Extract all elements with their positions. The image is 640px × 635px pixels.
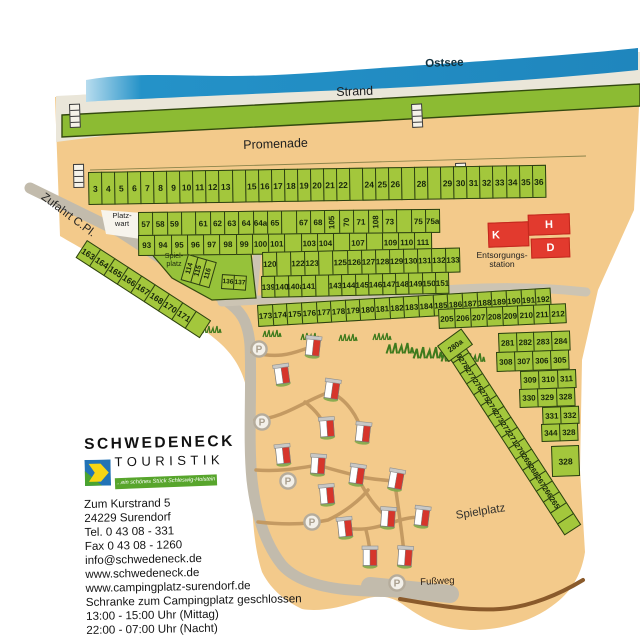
- plot-61: 61: [195, 211, 211, 235]
- plot-99: 99: [235, 234, 252, 255]
- plot-empty: [181, 211, 197, 235]
- building-k: K: [488, 221, 530, 247]
- logo: SCHWEDENECK TOURISTIK ...ein schönes Stü…: [84, 432, 255, 470]
- plot-empty: [396, 209, 412, 233]
- svg-text:P: P: [259, 417, 266, 428]
- building-h-label: H: [545, 218, 553, 230]
- logo-subtitle: TOURISTIK: [114, 451, 254, 469]
- plot-70: 70: [339, 210, 355, 234]
- plot-282: 282: [516, 332, 535, 353]
- plot-65: 65: [267, 210, 283, 234]
- plot-75a: 75a: [425, 209, 441, 233]
- building-d: D: [531, 237, 571, 258]
- building-h: H: [528, 213, 571, 235]
- plot-empty: [281, 210, 297, 234]
- plot-105: 105: [324, 210, 340, 234]
- building-k-label: K: [492, 229, 500, 241]
- plot-330: 330: [519, 388, 539, 408]
- label-promenade: Promenade: [243, 136, 308, 152]
- label-spielplatz-small: Spiel- platz: [158, 252, 190, 267]
- building-d-label: D: [546, 242, 554, 254]
- beach-hut-icon: [318, 416, 336, 440]
- plot-64: 64: [238, 211, 254, 235]
- plot-151: 151: [435, 272, 450, 294]
- stairs-icon: [70, 104, 81, 127]
- plot-68: 68: [310, 210, 326, 234]
- plot-row-r8b: 344328: [541, 423, 579, 442]
- plot-59: 59: [167, 212, 183, 236]
- plot-98: 98: [219, 234, 236, 255]
- plot-row-r6b: 308307306305: [496, 349, 570, 372]
- label-fussweg: Fußweg: [420, 575, 455, 588]
- plot-311: 311: [557, 369, 577, 389]
- plot-284: 284: [551, 330, 570, 351]
- plot-328: 328: [559, 423, 579, 442]
- parking-icon: P: [389, 575, 404, 590]
- plot-332: 332: [560, 406, 580, 425]
- label-platzwart: Platz- wart: [103, 212, 141, 228]
- label-entsorgung-line2: station: [466, 260, 538, 269]
- plot-row-r9: 328: [551, 445, 580, 477]
- logo-wordmark: SCHWEDENECK: [84, 432, 254, 454]
- plot-329: 329: [537, 388, 557, 408]
- parking-icon: P: [251, 341, 266, 356]
- plot-row-r3b: 139140140a141143144145146147148149150151: [261, 272, 450, 298]
- label-ostsee: Ostsee: [425, 57, 464, 70]
- svg-text:P: P: [285, 476, 292, 487]
- plot-71: 71: [353, 210, 369, 234]
- plot-281: 281: [498, 332, 517, 353]
- plot-306: 306: [532, 350, 552, 371]
- plot-67: 67: [296, 210, 312, 234]
- label-spielplatz-small-line2: platz: [158, 260, 190, 268]
- campground-map: PPPPP 3456789101112131516171819202122242…: [0, 0, 640, 635]
- plot-344: 344: [541, 423, 561, 442]
- svg-text:P: P: [394, 578, 401, 589]
- plot-328: 328: [556, 387, 576, 407]
- parking-icon: P: [254, 414, 269, 429]
- stairs-icon: [412, 104, 423, 127]
- plot-328: 328: [551, 445, 580, 477]
- plot-64a: 64a: [253, 211, 269, 235]
- beach-hut-icon: [362, 546, 378, 569]
- plot-58: 58: [152, 212, 168, 236]
- logo-mark-icon: [85, 459, 112, 486]
- parking-icon: P: [280, 473, 295, 488]
- label-strand: Strand: [336, 84, 373, 99]
- contact-block: Zum Kurstrand 524229 SurendorfTel. 0 43 …: [84, 494, 302, 635]
- beach-hut-icon: [396, 545, 414, 569]
- plot-331: 331: [542, 406, 562, 425]
- plot-133: 133: [445, 248, 461, 273]
- svg-text:P: P: [256, 344, 263, 355]
- plot-36: 36: [532, 165, 547, 198]
- road-bottom-pad: [370, 586, 450, 594]
- plot-212: 212: [549, 303, 567, 324]
- plot-73: 73: [382, 209, 398, 233]
- plot-283: 283: [533, 331, 552, 352]
- plot-62: 62: [210, 211, 226, 235]
- plot-309: 309: [520, 370, 540, 390]
- plot-row-r7b: 330329328: [519, 387, 576, 408]
- contact-line: 22:00 - 07:00 Uhr (Nacht): [86, 620, 302, 635]
- plot-308: 308: [496, 351, 516, 372]
- plot-97: 97: [203, 234, 220, 255]
- plot-305: 305: [550, 349, 570, 370]
- plot-310: 310: [538, 370, 558, 390]
- svg-text:P: P: [309, 517, 316, 528]
- plot-75: 75: [411, 209, 427, 233]
- plot-307: 307: [514, 351, 534, 372]
- plot-108: 108: [367, 209, 383, 233]
- plot-93: 93: [138, 235, 155, 256]
- plot-row-r13: 136137: [221, 274, 247, 291]
- label-platzwart-line2: wart: [103, 220, 141, 228]
- parking-icon: P: [304, 514, 319, 529]
- beach-hut-icon: [309, 453, 327, 477]
- beach-hut-icon: [379, 506, 397, 530]
- plot-63: 63: [224, 211, 240, 235]
- plot-137: 137: [233, 275, 247, 291]
- label-entsorgungsstation: Entsorgungs- station: [466, 251, 538, 269]
- beach-hut-icon: [318, 483, 336, 507]
- stairs-icon: [74, 164, 84, 187]
